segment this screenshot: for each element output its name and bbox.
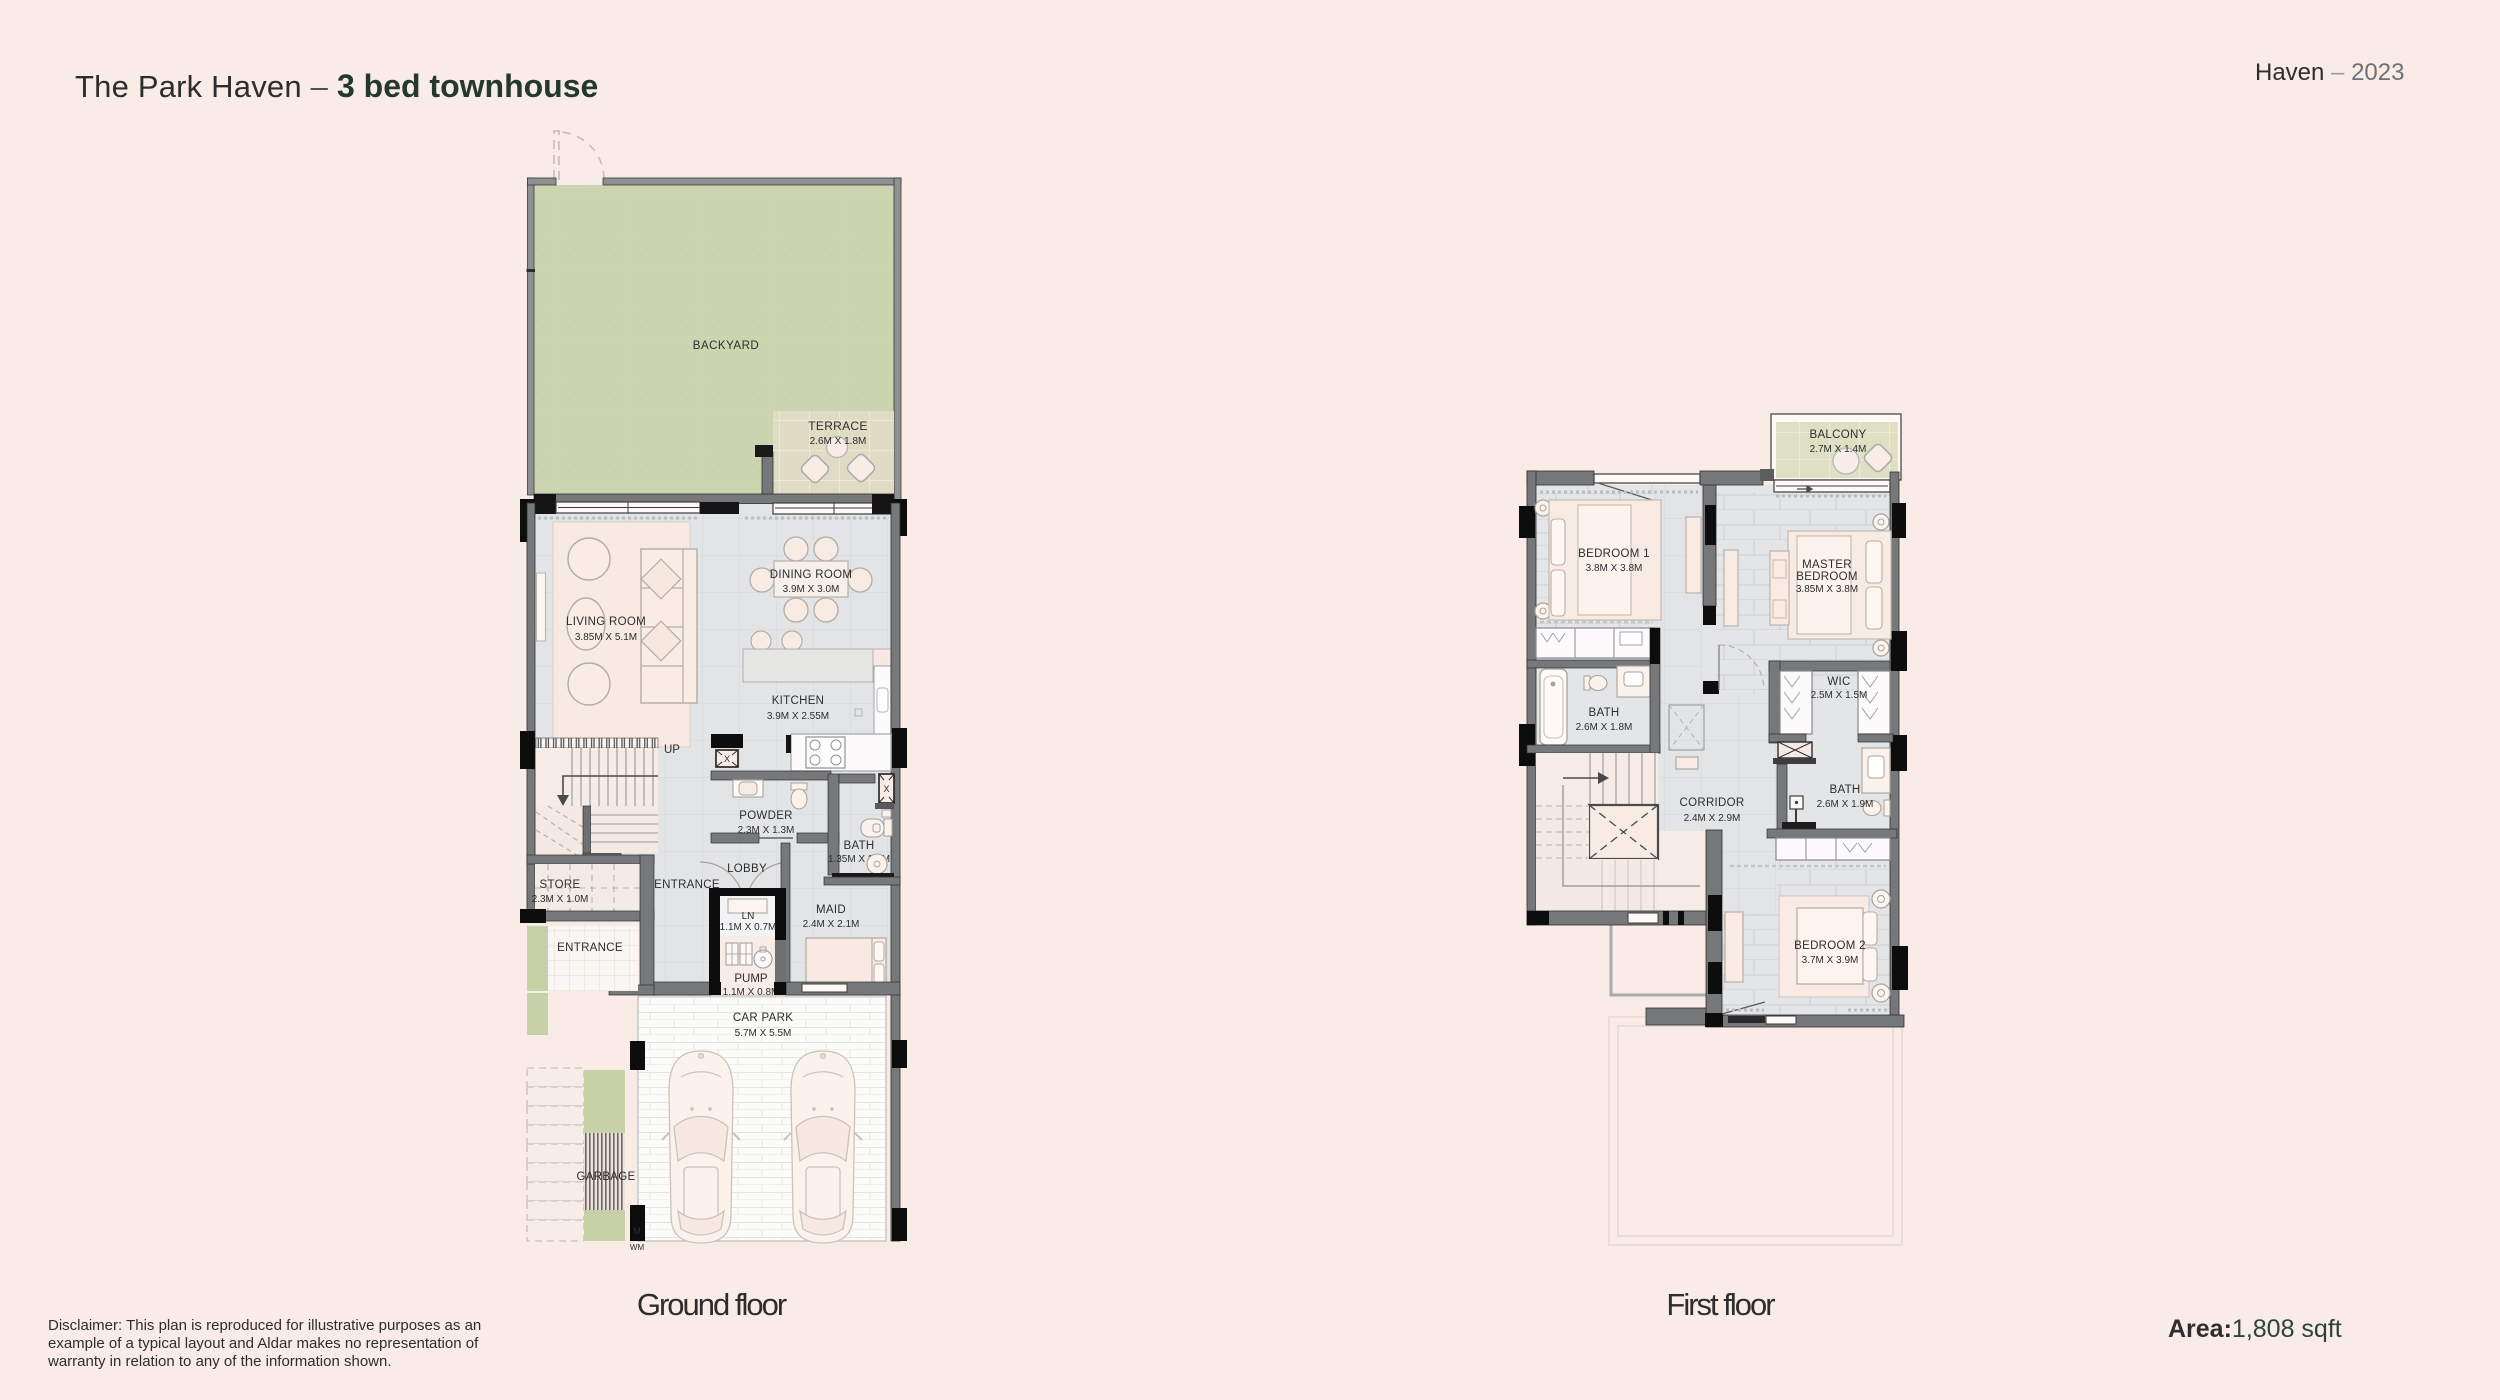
- svg-text:2.6M X 1.9M: 2.6M X 1.9M: [1817, 799, 1874, 810]
- svg-text:3.9M X 3.0M: 3.9M X 3.0M: [783, 584, 840, 595]
- svg-text:1.1M X 0.7M: 1.1M X 0.7M: [720, 922, 777, 933]
- svg-text:MAID: MAID: [816, 904, 846, 916]
- svg-text:X: X: [724, 754, 730, 764]
- svg-text:CAR PARK: CAR PARK: [733, 1012, 793, 1024]
- svg-text:BEDROOM 1: BEDROOM 1: [1578, 548, 1650, 560]
- svg-text:BATH: BATH: [1588, 707, 1619, 719]
- svg-text:BEDROOM: BEDROOM: [1796, 571, 1858, 583]
- svg-text:3.85M X 3.8M: 3.85M X 3.8M: [1796, 584, 1858, 595]
- svg-text:The Park Haven – 3 bed townho: The Park Haven – 3 bed townhouse: [75, 68, 598, 104]
- svg-text:ENTRANCE: ENTRANCE: [557, 942, 623, 954]
- svg-text:KITCHEN: KITCHEN: [772, 695, 825, 707]
- svg-text:LIVING ROOM: LIVING ROOM: [566, 616, 646, 628]
- svg-text:Ground floor: Ground floor: [637, 1287, 787, 1322]
- svg-text:2.3M X 1.0M: 2.3M X 1.0M: [532, 894, 589, 905]
- svg-text:3.7M X 3.9M: 3.7M X 3.9M: [1802, 955, 1859, 966]
- svg-text:Area:1,808 sqft: Area:1,808 sqft: [2168, 1315, 2342, 1343]
- svg-text:5.7M X 5.5M: 5.7M X 5.5M: [735, 1028, 792, 1039]
- svg-text:BALCONY: BALCONY: [1809, 429, 1866, 441]
- svg-text:LOBBY: LOBBY: [727, 863, 767, 875]
- svg-text:BATH: BATH: [843, 840, 874, 852]
- svg-text:2.7M X 1.4M: 2.7M X 1.4M: [1810, 444, 1867, 455]
- svg-text:PUMP: PUMP: [734, 973, 768, 985]
- svg-text:BACKYARD: BACKYARD: [693, 340, 759, 352]
- svg-text:warranty in relation to any of: warranty in relation to any of the infor…: [47, 1353, 392, 1370]
- svg-text:GARBAGE: GARBAGE: [577, 1171, 636, 1183]
- svg-text:2.6M X 1.8M: 2.6M X 1.8M: [810, 436, 867, 447]
- svg-text:3.85M X 5.1M: 3.85M X 5.1M: [575, 632, 637, 643]
- svg-text:2.4M X 2.9M: 2.4M X 2.9M: [1684, 813, 1741, 824]
- svg-text:BEDROOM 2: BEDROOM 2: [1794, 940, 1866, 952]
- svg-text:LN: LN: [742, 911, 755, 922]
- svg-text:TERRACE: TERRACE: [808, 419, 867, 433]
- svg-text:CORRIDOR: CORRIDOR: [1679, 797, 1744, 809]
- svg-text:STORE: STORE: [540, 879, 581, 891]
- svg-text:3.9M X 2.55M: 3.9M X 2.55M: [767, 711, 829, 722]
- svg-text:BATH: BATH: [1829, 784, 1860, 796]
- svg-text:2.4M X 2.1M: 2.4M X 2.1M: [803, 919, 860, 930]
- svg-text:2.5M X 1.5M: 2.5M X 1.5M: [1811, 690, 1868, 701]
- svg-text:POWDER: POWDER: [739, 810, 793, 822]
- svg-text:WM: WM: [630, 1243, 645, 1252]
- svg-text:M: M: [633, 1226, 641, 1236]
- svg-text:Haven – 2023: Haven – 2023: [2255, 59, 2404, 86]
- svg-text:DINING ROOM: DINING ROOM: [770, 569, 853, 581]
- svg-text:example of a typical layout an: example of a typical layout and Aldar ma…: [48, 1335, 479, 1352]
- svg-text:First floor: First floor: [1666, 1287, 1775, 1322]
- svg-text:WIC: WIC: [1827, 676, 1850, 688]
- svg-text:MASTER: MASTER: [1802, 559, 1852, 571]
- svg-text:UP: UP: [664, 744, 680, 756]
- svg-text:2.6M X 1.8M: 2.6M X 1.8M: [1576, 722, 1633, 733]
- svg-text:Disclaimer: This plan is repro: Disclaimer: This plan is reproduced for …: [48, 1317, 481, 1334]
- svg-text:X: X: [883, 784, 889, 794]
- svg-text:3.8M X 3.8M: 3.8M X 3.8M: [1586, 563, 1643, 574]
